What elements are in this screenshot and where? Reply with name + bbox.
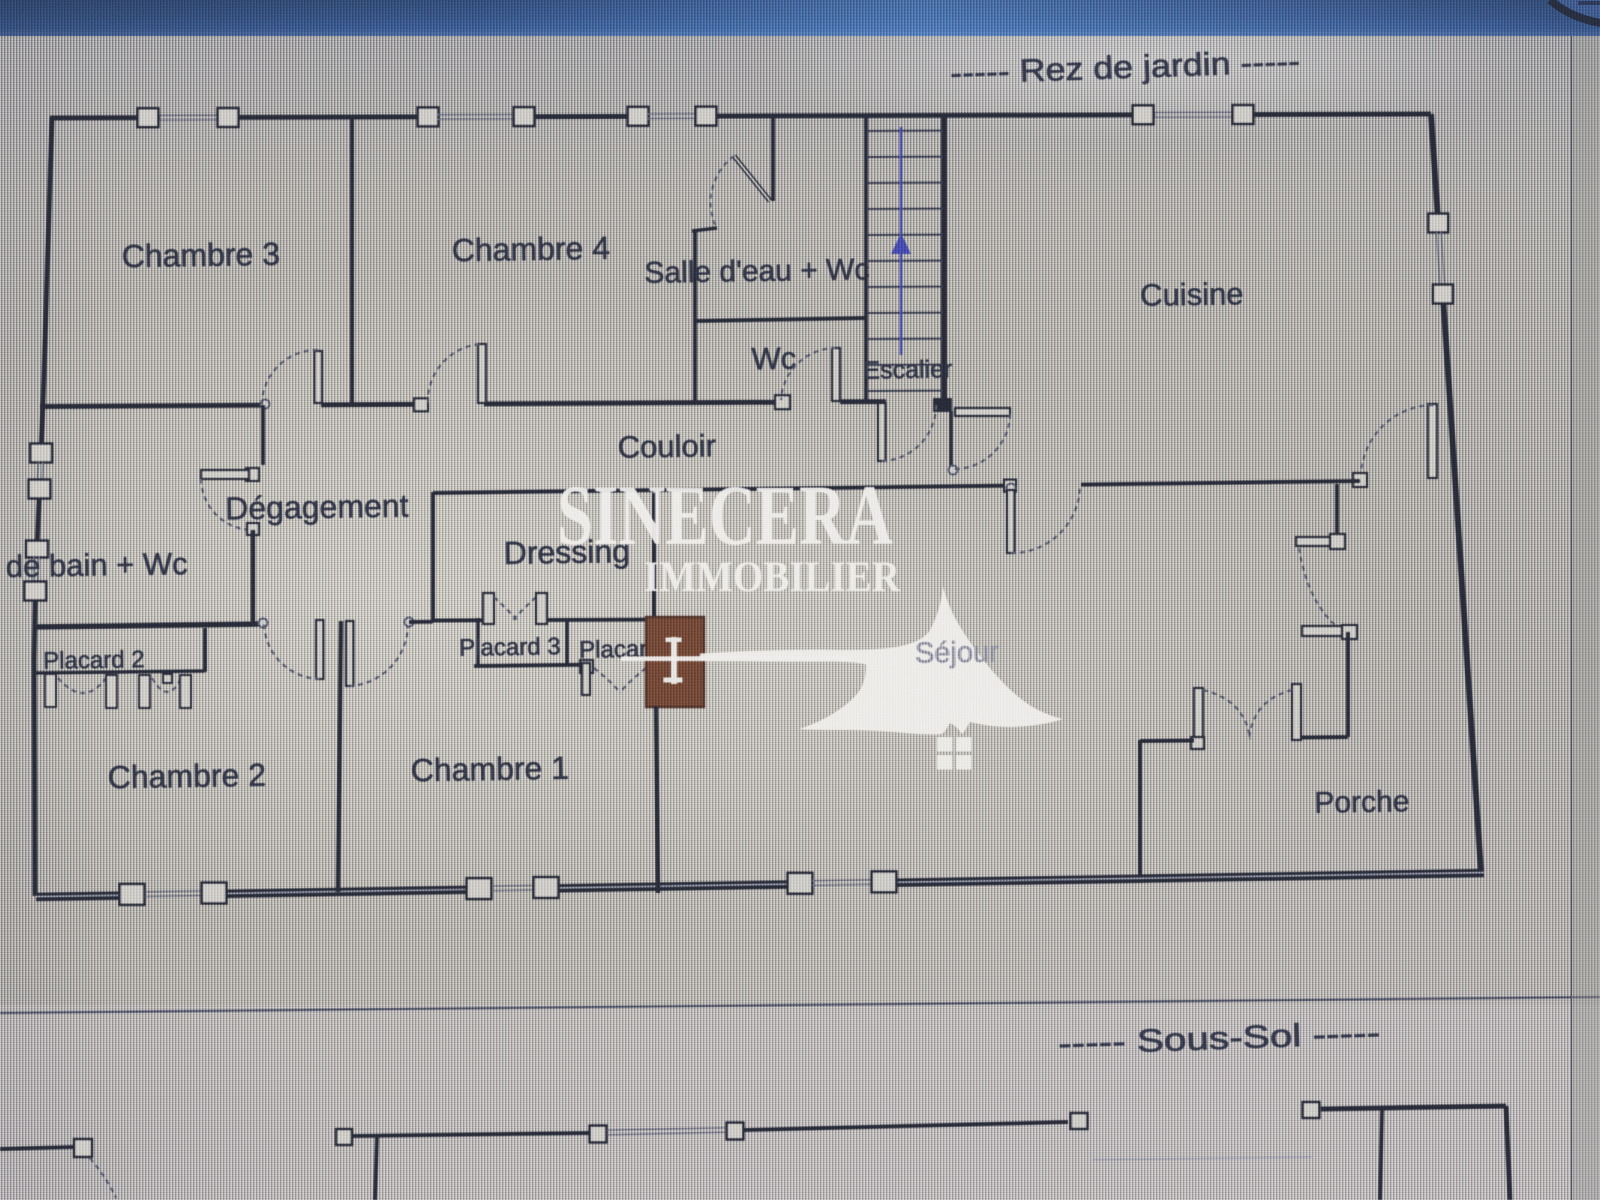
svg-text:Placard 3: Placard 3 bbox=[459, 633, 561, 662]
svg-text:Escalier: Escalier bbox=[863, 355, 952, 384]
svg-text:Séjour: Séjour bbox=[915, 636, 1000, 669]
svg-text:IMMOBILIER: IMMOBILIER bbox=[644, 554, 901, 601]
svg-text:Chambre 3: Chambre 3 bbox=[121, 236, 280, 274]
svg-text:Couloir: Couloir bbox=[617, 428, 716, 465]
svg-text:de bain + Wc: de bain + Wc bbox=[6, 546, 188, 584]
svg-text:----- Rez de jardin -----: ----- Rez de jardin ----- bbox=[950, 43, 1301, 91]
svg-text:Porche: Porche bbox=[1314, 785, 1410, 819]
svg-text:Chambre 4: Chambre 4 bbox=[451, 230, 610, 268]
svg-text:Salle d'eau + Wc: Salle d'eau + Wc bbox=[644, 253, 870, 290]
svg-text:Chambre 2: Chambre 2 bbox=[107, 757, 266, 795]
svg-text:SINECERA: SINECERA bbox=[557, 467, 893, 563]
svg-text:Placard 2: Placard 2 bbox=[43, 646, 145, 675]
svg-text:Dégagement: Dégagement bbox=[225, 488, 409, 527]
svg-text:Cuisine: Cuisine bbox=[1140, 276, 1244, 313]
svg-text:----- Sous-Sol -----: ----- Sous-Sol ----- bbox=[1058, 1014, 1381, 1061]
svg-text:Wc: Wc bbox=[751, 341, 796, 377]
svg-text:Chambre 1: Chambre 1 bbox=[410, 750, 569, 788]
